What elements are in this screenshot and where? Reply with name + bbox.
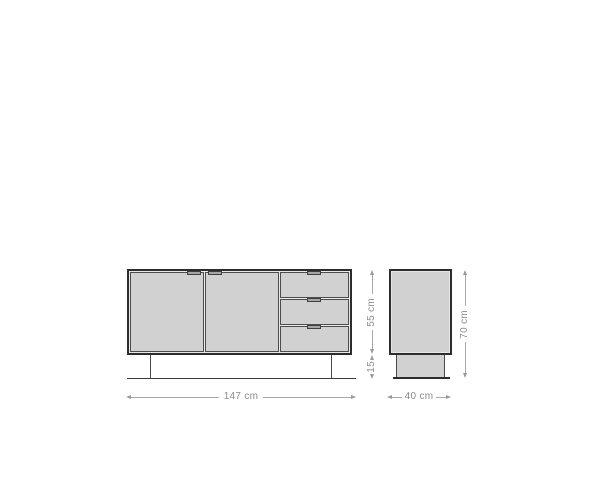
- sideboard-side-outline: [389, 269, 452, 355]
- side-floor-line: [393, 377, 450, 379]
- front-floor-line: [127, 378, 356, 379]
- drawer-top: [280, 272, 349, 298]
- door-left: [130, 272, 204, 352]
- dimension-line: [131, 397, 219, 398]
- dimension-drawing-canvas: 147 cm 55 cm 15 70 cm: [0, 0, 600, 500]
- door-right-handle-notch: [208, 271, 222, 275]
- drawer-top-handle-notch: [307, 271, 321, 275]
- side-depth-dimension: 40 cm: [387, 391, 451, 403]
- door-right: [205, 272, 279, 352]
- dimension-line: [465, 275, 466, 306]
- dimension-line: [392, 397, 402, 398]
- front-base-height-label: 15: [367, 360, 377, 374]
- front-right-leg: [331, 355, 332, 378]
- drawer-column: [280, 272, 349, 352]
- sideboard-front-outline: [127, 269, 352, 355]
- side-total-height-dimension: 70 cm: [458, 270, 472, 378]
- dimension-line: [372, 330, 373, 349]
- arrow-down-icon: [463, 373, 467, 378]
- arrow-down-icon: [370, 349, 374, 354]
- dimension-line: [263, 397, 351, 398]
- front-width-label: 147 cm: [219, 392, 264, 402]
- front-body-height-label: 55 cm: [367, 294, 377, 331]
- arrow-down-icon: [370, 374, 374, 379]
- side-depth-label: 40 cm: [402, 392, 437, 402]
- side-plinth: [396, 355, 445, 377]
- dimension-line: [436, 397, 446, 398]
- dimension-line: [372, 275, 373, 294]
- drawer-bottom-handle-notch: [307, 325, 321, 329]
- front-width-dimension: 147 cm: [126, 391, 356, 403]
- side-total-height-label: 70 cm: [460, 306, 470, 343]
- front-left-leg: [150, 355, 151, 378]
- arrow-right-icon: [351, 395, 356, 399]
- arrow-right-icon: [446, 395, 451, 399]
- dimension-line: [465, 342, 466, 373]
- door-left-handle-notch: [187, 271, 201, 275]
- front-base-height-dimension: 15: [365, 355, 379, 378]
- drawer-middle-handle-notch: [307, 298, 321, 302]
- front-body-height-dimension: 55 cm: [365, 270, 379, 354]
- drawer-bottom: [280, 326, 349, 352]
- drawer-middle: [280, 299, 349, 325]
